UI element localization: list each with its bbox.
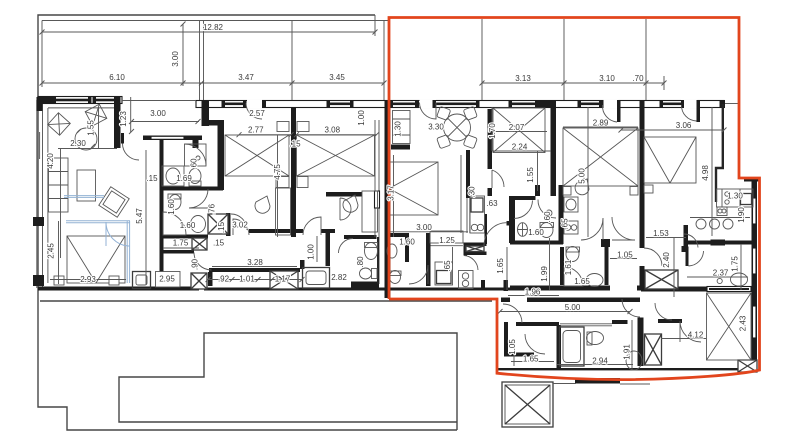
svg-text:.90: .90 (191, 258, 200, 270)
svg-text:3.30: 3.30 (428, 123, 444, 132)
svg-text:2.37: 2.37 (713, 269, 729, 278)
svg-text:1.69: 1.69 (176, 174, 192, 183)
svg-text:2.82: 2.82 (331, 273, 347, 282)
svg-text:1.00: 1.00 (357, 110, 366, 126)
svg-text:3.13: 3.13 (515, 74, 531, 83)
svg-text:4.12: 4.12 (688, 331, 704, 340)
svg-text:5.47: 5.47 (135, 208, 144, 224)
svg-text:5.00: 5.00 (565, 303, 581, 312)
svg-text:1.53: 1.53 (653, 229, 669, 238)
svg-text:1.60: 1.60 (399, 238, 415, 247)
svg-text:2.95: 2.95 (159, 275, 175, 284)
svg-text:.76: .76 (208, 203, 217, 215)
svg-text:1.01: 1.01 (239, 275, 255, 284)
svg-text:1.23: 1.23 (119, 111, 128, 127)
svg-text:12.82: 12.82 (203, 23, 224, 32)
svg-text:1.55: 1.55 (526, 167, 535, 183)
svg-text:6.10: 6.10 (109, 73, 125, 82)
svg-text:2.07: 2.07 (509, 123, 525, 132)
svg-text:2.40: 2.40 (662, 252, 671, 268)
svg-text:2.77: 2.77 (248, 126, 264, 135)
svg-text:2.57: 2.57 (249, 109, 265, 118)
svg-text:1.75: 1.75 (731, 256, 740, 272)
svg-text:2.89: 2.89 (593, 119, 609, 128)
svg-text:1.90: 1.90 (737, 207, 746, 223)
svg-text:2.43: 2.43 (739, 315, 748, 331)
svg-text:2.94: 2.94 (592, 357, 608, 366)
svg-text:3.28: 3.28 (247, 258, 263, 267)
svg-text:.80: .80 (356, 256, 365, 268)
svg-text:4.20: 4.20 (46, 153, 55, 169)
svg-text:3.00: 3.00 (416, 223, 432, 232)
svg-text:2.45: 2.45 (47, 243, 56, 259)
svg-text:1.70: 1.70 (488, 123, 497, 139)
svg-text:1.65: 1.65 (523, 355, 539, 364)
svg-text:2.30: 2.30 (70, 139, 86, 148)
svg-text:1.96: 1.96 (525, 288, 541, 297)
svg-text:1.00: 1.00 (307, 244, 316, 260)
svg-text:3.00: 3.00 (171, 51, 180, 67)
svg-text:2.24: 2.24 (512, 143, 528, 152)
svg-text:1.65: 1.65 (574, 277, 590, 286)
svg-text:.65: .65 (443, 260, 452, 272)
svg-text:3.10: 3.10 (599, 74, 615, 83)
svg-text:3.06: 3.06 (676, 121, 692, 130)
svg-text:1.05: 1.05 (617, 251, 633, 260)
svg-text:1.60: 1.60 (528, 228, 544, 237)
svg-text:3.45: 3.45 (329, 73, 345, 82)
svg-text:1.91: 1.91 (623, 344, 632, 360)
svg-text:4.75: 4.75 (273, 164, 282, 180)
svg-text:.92: .92 (218, 275, 230, 284)
svg-text:.15: .15 (213, 239, 225, 248)
svg-text:.70: .70 (632, 74, 644, 83)
svg-text:4.98: 4.98 (701, 165, 710, 181)
svg-text:3.47: 3.47 (238, 73, 254, 82)
svg-text:3.02: 3.02 (232, 221, 248, 230)
svg-text:.15: .15 (146, 174, 158, 183)
svg-text:1.60: 1.60 (180, 221, 196, 230)
svg-text:.60: .60 (190, 158, 199, 170)
svg-text:3.08: 3.08 (325, 126, 341, 135)
svg-text:.65: .65 (561, 218, 570, 230)
svg-text:1.30: 1.30 (394, 121, 403, 137)
svg-text:.30: .30 (468, 186, 477, 198)
svg-text:1.60: 1.60 (167, 199, 176, 215)
svg-text:3.17: 3.17 (387, 185, 396, 201)
svg-text:.15: .15 (289, 140, 301, 149)
svg-text:1.65: 1.65 (496, 258, 505, 274)
svg-text:5.00: 5.00 (578, 168, 587, 184)
svg-text:.15: .15 (217, 221, 226, 233)
svg-text:3.00: 3.00 (150, 109, 166, 118)
svg-text:1.05: 1.05 (508, 339, 517, 355)
svg-text:2.93: 2.93 (80, 275, 96, 284)
svg-text:.60: .60 (543, 211, 552, 223)
svg-text:1.25: 1.25 (439, 236, 455, 245)
svg-text:1.30: 1.30 (727, 192, 743, 201)
svg-text:1.75: 1.75 (173, 239, 189, 248)
svg-text:1.61: 1.61 (564, 259, 573, 275)
svg-text:.63: .63 (486, 199, 498, 208)
svg-text:1.17: 1.17 (275, 275, 291, 284)
svg-text:1.99: 1.99 (540, 266, 549, 282)
svg-text:1.55: 1.55 (87, 120, 96, 136)
